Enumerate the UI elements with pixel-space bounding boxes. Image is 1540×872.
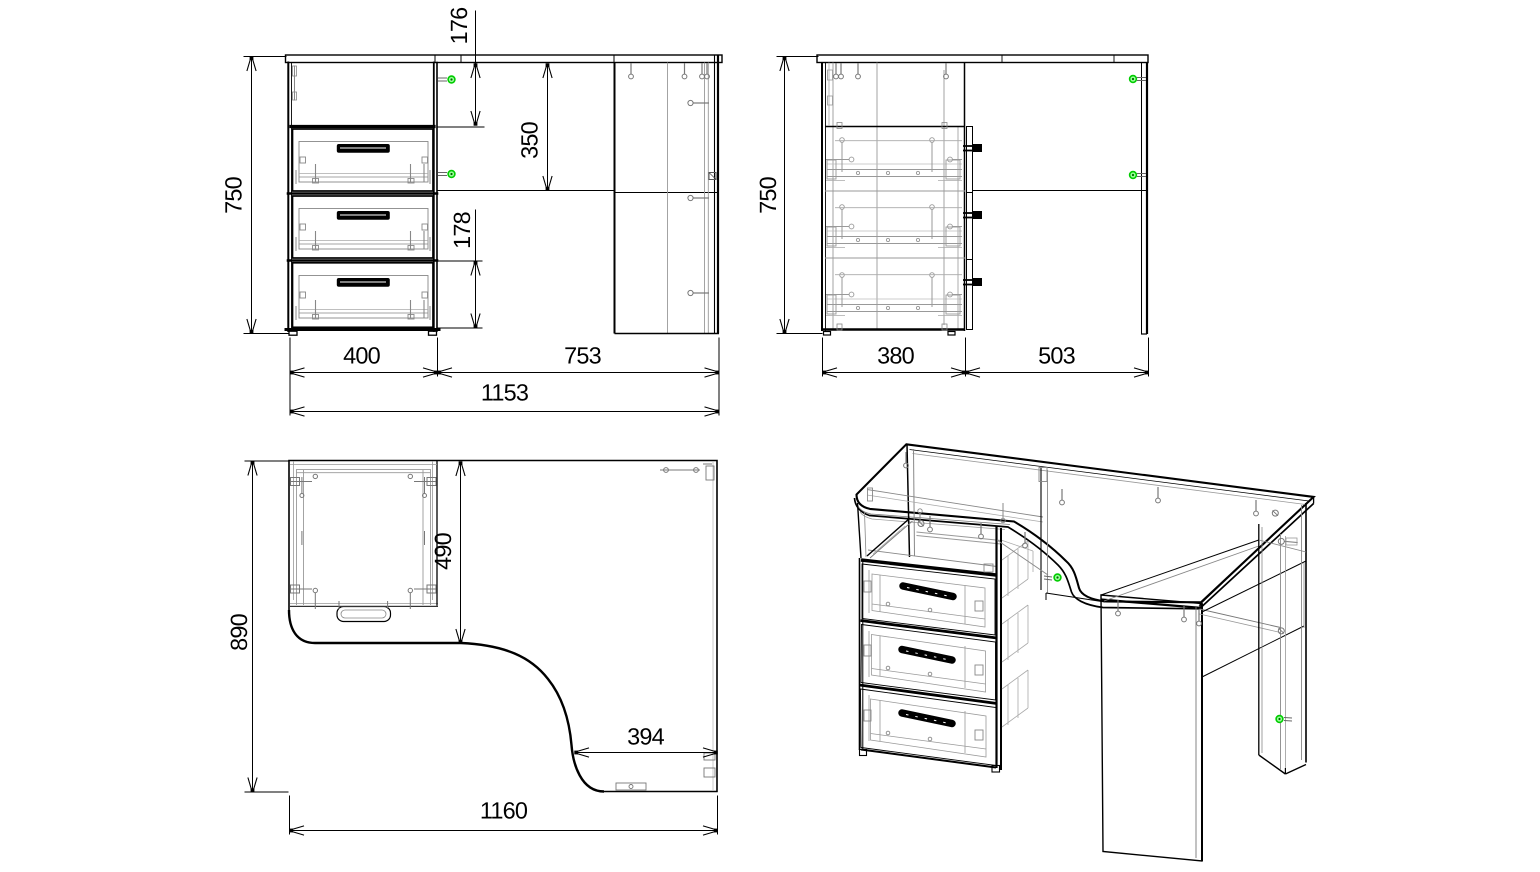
svg-text:394: 394 — [627, 724, 665, 750]
svg-text:503: 503 — [1038, 343, 1076, 369]
svg-text:400: 400 — [343, 343, 381, 369]
svg-text:750: 750 — [221, 176, 247, 214]
svg-text:350: 350 — [517, 121, 543, 159]
svg-text:380: 380 — [877, 343, 915, 369]
svg-text:753: 753 — [564, 343, 602, 369]
svg-text:1153: 1153 — [481, 380, 529, 406]
svg-text:178: 178 — [449, 211, 475, 249]
svg-text:750: 750 — [755, 176, 781, 214]
svg-text:490: 490 — [430, 532, 456, 570]
svg-text:1160: 1160 — [480, 798, 528, 824]
svg-text:890: 890 — [226, 613, 252, 651]
svg-text:176: 176 — [446, 7, 472, 45]
